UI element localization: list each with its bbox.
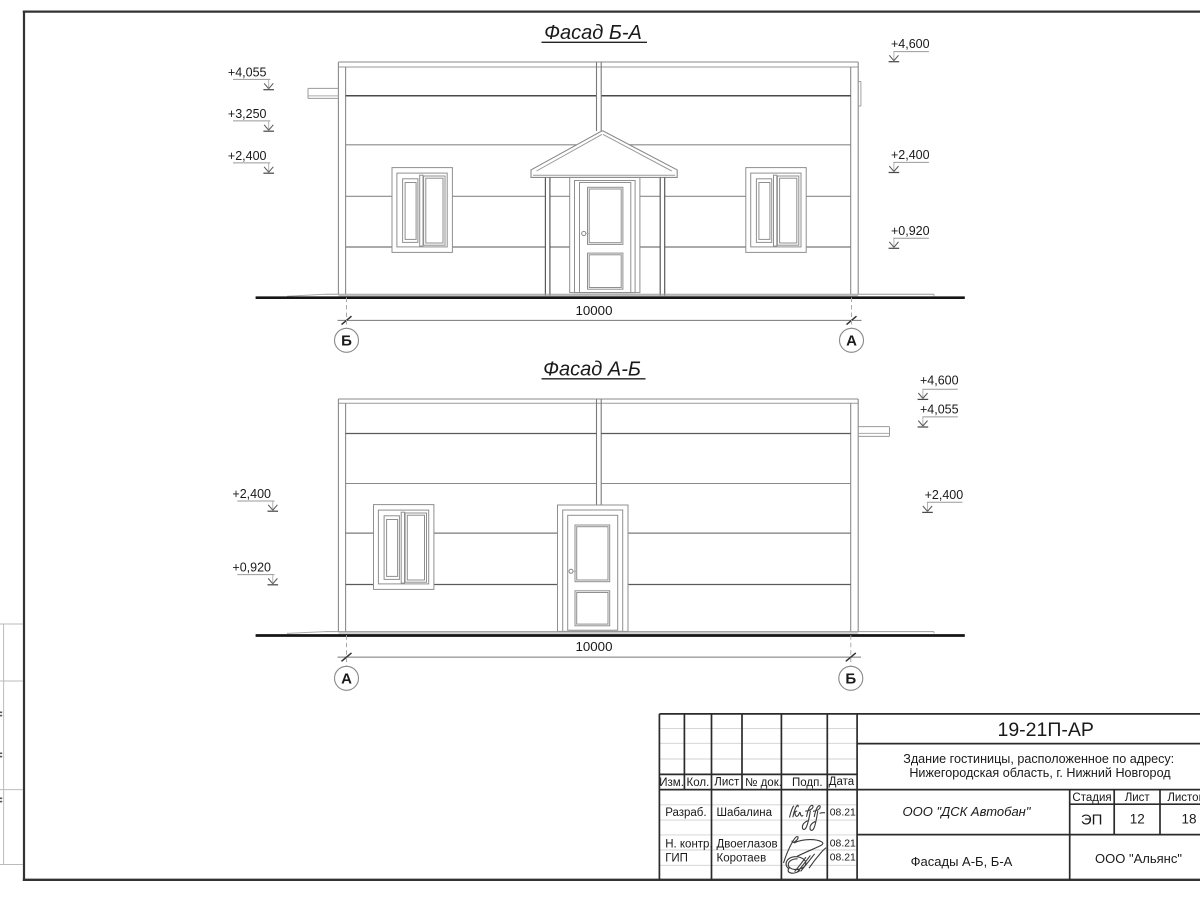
svg-text:Изм.: Изм.: [659, 777, 684, 789]
svg-text:10000: 10000: [576, 303, 613, 318]
svg-text:+0,920: +0,920: [232, 561, 271, 575]
svg-text:Двоеглазов: Двоеглазов: [717, 839, 778, 851]
svg-text:10000: 10000: [576, 639, 613, 654]
svg-text:А: А: [341, 671, 352, 688]
svg-text:ЭП: ЭП: [1081, 811, 1103, 828]
svg-text:Нижегородская область, г. Нижн: Нижегородская область, г. Нижний Новгоро…: [909, 766, 1171, 780]
svg-text:+2,400: +2,400: [925, 488, 964, 502]
svg-text:Здание гостиницы, расположенно: Здание гостиницы, расположенное по адрес…: [903, 752, 1174, 766]
svg-text:ООО "ДСК Автобан": ООО "ДСК Автобан": [903, 804, 1032, 819]
svg-text:Дата: Дата: [829, 776, 855, 788]
svg-text:Кол.: Кол.: [687, 777, 710, 789]
svg-text:Н. контр.: Н. контр.: [665, 839, 712, 851]
svg-text:Б: Б: [845, 671, 856, 688]
svg-text:08.21: 08.21: [830, 808, 856, 819]
svg-text:+0,920: +0,920: [891, 224, 930, 238]
svg-text:Лист: Лист: [1125, 792, 1151, 804]
svg-text:Фасады А-Б, Б-А: Фасады А-Б, Б-А: [911, 854, 1013, 869]
svg-text:18: 18: [1181, 811, 1196, 826]
svg-text:А: А: [846, 333, 857, 350]
svg-text:Стадия: Стадия: [1072, 792, 1111, 804]
svg-text:+4,055: +4,055: [228, 66, 267, 80]
svg-text:08.21: 08.21: [830, 853, 856, 864]
svg-text:ООО "Альянс": ООО "Альянс": [1095, 851, 1182, 866]
svg-text:+3,250: +3,250: [228, 107, 267, 121]
svg-text:Лист: Лист: [714, 777, 740, 789]
svg-text:Подп.: Подп.: [792, 777, 823, 789]
svg-text:Б: Б: [341, 333, 352, 350]
svg-text:Разраб.: Разраб.: [665, 807, 706, 819]
svg-text:12: 12: [1130, 811, 1145, 826]
svg-text:+2,400: +2,400: [232, 487, 271, 501]
svg-text:19-21П-АР: 19-21П-АР: [997, 719, 1093, 741]
svg-text:+4,600: +4,600: [891, 37, 930, 51]
svg-text:+4,055: +4,055: [920, 403, 959, 417]
svg-text:Листов: Листов: [1167, 792, 1200, 804]
svg-text:+4,600: +4,600: [920, 374, 959, 388]
svg-text:Шабалина: Шабалина: [717, 807, 773, 819]
svg-text:08.21: 08.21: [830, 839, 856, 850]
svg-text:+2,400: +2,400: [891, 148, 930, 162]
svg-text:ГИП: ГИП: [665, 853, 688, 865]
svg-text:Фасад А-Б: Фасад А-Б: [543, 359, 641, 381]
svg-text:№ док.: № док.: [745, 777, 782, 789]
svg-text:Фасад Б-А: Фасад Б-А: [544, 22, 642, 44]
svg-text:+2,400: +2,400: [228, 149, 267, 163]
svg-text:Коротаев: Коротаев: [717, 853, 767, 865]
